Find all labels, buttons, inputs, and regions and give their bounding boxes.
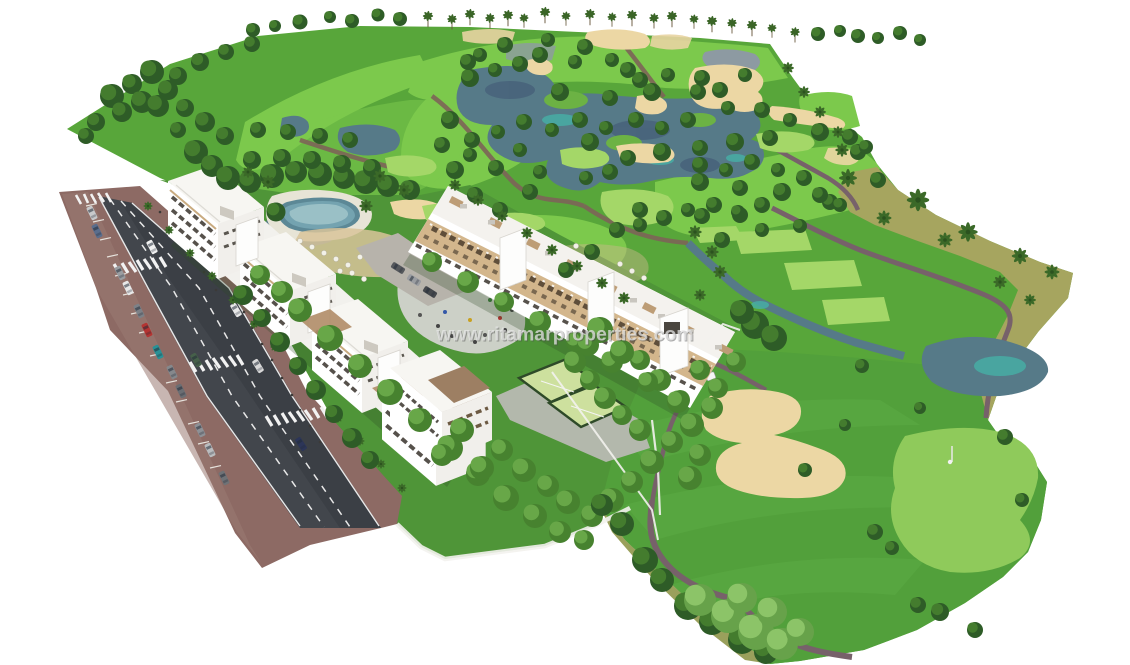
svg-text:www.ritamarproperties.com: www.ritamarproperties.com (435, 324, 693, 346)
